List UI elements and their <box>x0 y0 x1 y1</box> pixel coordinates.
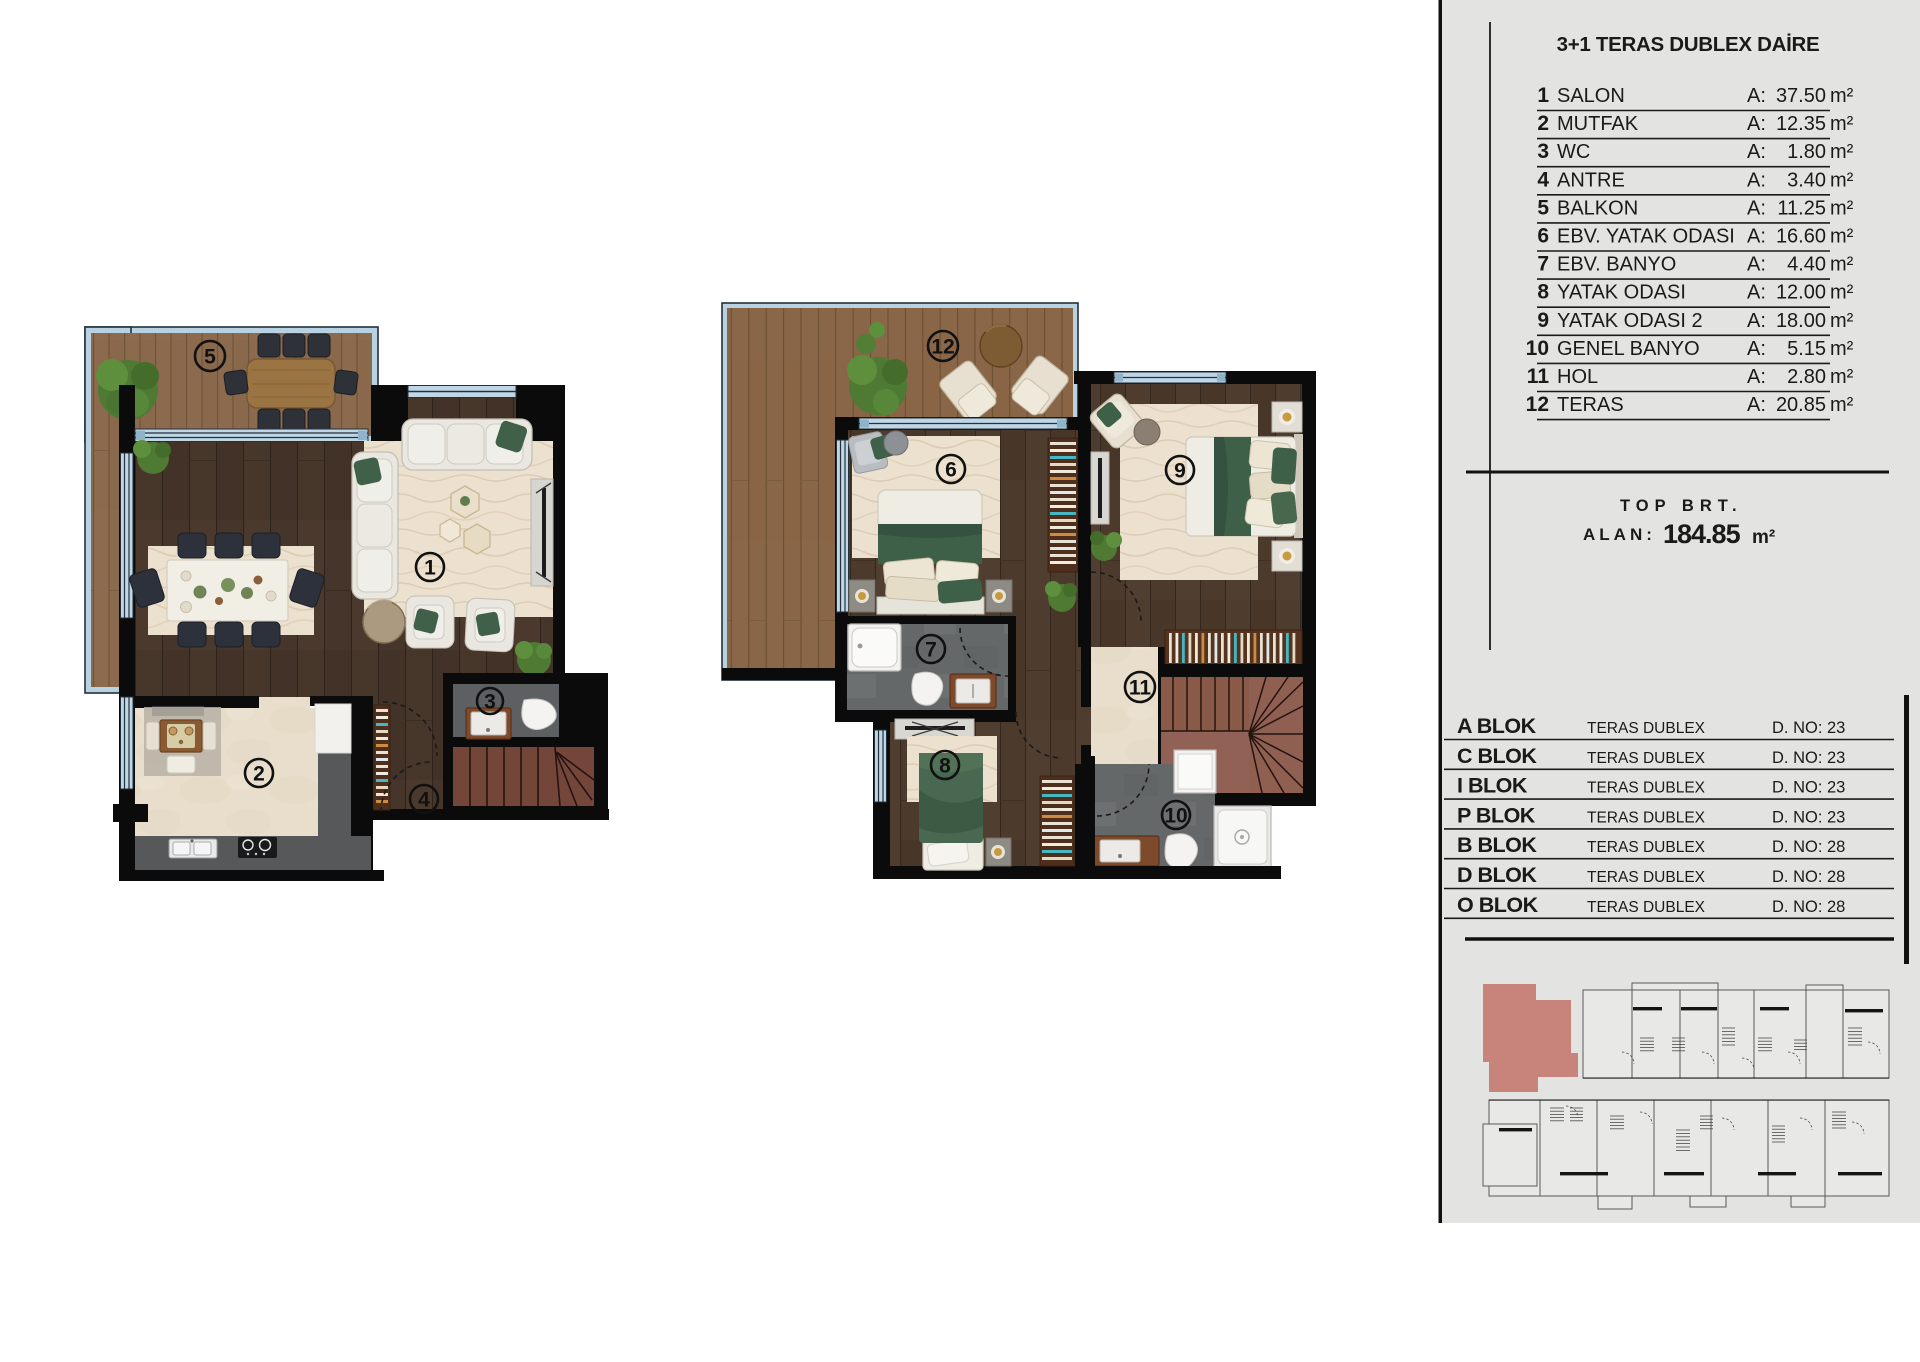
svg-text:5.15: 5.15 <box>1782 338 1826 360</box>
svg-text:TERAS DUBLEX: TERAS DUBLEX <box>1587 839 1706 856</box>
svg-text:11: 11 <box>1129 677 1152 700</box>
svg-text:A:: A: <box>1747 254 1766 276</box>
svg-text:20.85: 20.85 <box>1776 394 1826 416</box>
svg-text:A:: A: <box>1747 338 1766 360</box>
svg-text:m²: m² <box>1830 197 1854 219</box>
svg-text:11.25: 11.25 <box>1777 197 1826 219</box>
svg-text:GENEL BANYO: GENEL BANYO <box>1557 338 1700 360</box>
svg-text:TERAS DUBLEX: TERAS DUBLEX <box>1587 899 1706 916</box>
svg-text:12.00: 12.00 <box>1776 282 1826 304</box>
svg-text:184.85: 184.85 <box>1663 519 1741 549</box>
svg-text:9: 9 <box>1537 309 1549 332</box>
svg-text:m²: m² <box>1830 226 1854 248</box>
svg-text:BALKON: BALKON <box>1557 197 1638 219</box>
svg-text:m²: m² <box>1830 338 1854 360</box>
svg-text:P BLOK: P BLOK <box>1457 803 1536 827</box>
svg-text:C BLOK: C BLOK <box>1457 744 1537 768</box>
svg-text:I BLOK: I BLOK <box>1457 774 1528 798</box>
svg-text:ANTRE: ANTRE <box>1557 169 1625 191</box>
svg-text:SALON: SALON <box>1557 85 1625 107</box>
svg-text:A:: A: <box>1747 282 1766 304</box>
svg-text:6: 6 <box>1537 225 1549 248</box>
svg-text:7: 7 <box>1537 253 1549 276</box>
svg-text:4: 4 <box>418 789 430 812</box>
svg-text:A:: A: <box>1747 226 1766 248</box>
svg-text:A:: A: <box>1747 366 1766 388</box>
svg-text:m²: m² <box>1830 169 1854 191</box>
svg-text:A:: A: <box>1747 141 1766 163</box>
svg-text:3.40: 3.40 <box>1782 169 1826 191</box>
svg-text:TOP BRT.: TOP BRT. <box>1620 497 1743 515</box>
svg-text:D. NO: 23: D. NO: 23 <box>1772 808 1845 826</box>
svg-text:6: 6 <box>945 459 957 482</box>
svg-text:2: 2 <box>1537 112 1549 135</box>
svg-text:A:: A: <box>1747 169 1766 191</box>
svg-text:9: 9 <box>1174 460 1186 483</box>
svg-text:A:: A: <box>1747 197 1766 219</box>
svg-text:10: 10 <box>1526 337 1549 360</box>
svg-text:O BLOK: O BLOK <box>1457 893 1539 917</box>
svg-text:3+1 TERAS DUBLEX DAİRE: 3+1 TERAS DUBLEX DAİRE <box>1557 33 1820 56</box>
svg-text:5: 5 <box>1537 196 1549 219</box>
svg-text:18.00: 18.00 <box>1776 310 1826 332</box>
svg-text:8: 8 <box>939 755 951 778</box>
svg-text:A:: A: <box>1747 394 1766 416</box>
svg-text:3: 3 <box>1537 140 1549 163</box>
svg-text:2.80: 2.80 <box>1782 366 1826 388</box>
svg-text:ALAN:: ALAN: <box>1583 525 1656 544</box>
svg-text:A:: A: <box>1747 85 1766 107</box>
svg-text:12: 12 <box>931 336 954 359</box>
svg-text:TERAS: TERAS <box>1557 394 1624 416</box>
svg-text:m²: m² <box>1830 141 1854 163</box>
svg-text:YATAK ODASI: YATAK ODASI <box>1557 282 1686 304</box>
svg-text:1: 1 <box>424 557 436 580</box>
svg-text:D. NO: 28: D. NO: 28 <box>1772 868 1845 886</box>
svg-text:1: 1 <box>1537 84 1549 107</box>
svg-text:A:: A: <box>1747 113 1766 135</box>
svg-text:16.60: 16.60 <box>1776 226 1826 248</box>
svg-text:37.50: 37.50 <box>1776 85 1826 107</box>
svg-text:m²: m² <box>1830 282 1854 304</box>
svg-text:10: 10 <box>1164 805 1187 828</box>
svg-text:TERAS DUBLEX: TERAS DUBLEX <box>1587 750 1706 767</box>
svg-text:7: 7 <box>925 639 937 662</box>
svg-text:4.40: 4.40 <box>1782 254 1826 276</box>
svg-text:TERAS DUBLEX: TERAS DUBLEX <box>1587 809 1706 826</box>
svg-text:HOL: HOL <box>1557 366 1598 388</box>
svg-text:WC: WC <box>1557 141 1590 163</box>
svg-text:D. NO: 23: D. NO: 23 <box>1772 749 1845 767</box>
svg-text:EBV. YATAK ODASI: EBV. YATAK ODASI <box>1557 226 1735 248</box>
svg-text:5: 5 <box>204 346 216 369</box>
svg-text:D. NO: 28: D. NO: 28 <box>1772 898 1845 916</box>
svg-text:m²: m² <box>1752 527 1775 548</box>
svg-text:m²: m² <box>1830 310 1854 332</box>
svg-text:B BLOK: B BLOK <box>1457 833 1537 857</box>
svg-text:D. NO: 28: D. NO: 28 <box>1772 838 1845 856</box>
svg-text:D. NO: 23: D. NO: 23 <box>1772 719 1845 737</box>
svg-text:m²: m² <box>1830 394 1854 416</box>
svg-text:1.80: 1.80 <box>1782 141 1826 163</box>
svg-text:YATAK ODASI 2: YATAK ODASI 2 <box>1557 310 1703 332</box>
svg-text:A BLOK: A BLOK <box>1457 714 1537 738</box>
svg-text:TERAS DUBLEX: TERAS DUBLEX <box>1587 780 1706 797</box>
svg-text:TERAS DUBLEX: TERAS DUBLEX <box>1587 720 1706 737</box>
svg-text:m²: m² <box>1830 113 1854 135</box>
svg-text:m²: m² <box>1830 366 1854 388</box>
svg-text:TERAS DUBLEX: TERAS DUBLEX <box>1587 869 1706 886</box>
svg-text:EBV. BANYO: EBV. BANYO <box>1557 254 1676 276</box>
svg-text:MUTFAK: MUTFAK <box>1557 113 1639 135</box>
svg-text:8: 8 <box>1537 281 1549 304</box>
svg-text:4: 4 <box>1537 168 1549 191</box>
svg-text:11: 11 <box>1527 365 1550 388</box>
svg-text:3: 3 <box>484 691 496 714</box>
svg-text:D. NO: 23: D. NO: 23 <box>1772 779 1845 797</box>
svg-text:12.35: 12.35 <box>1776 113 1826 135</box>
svg-text:A:: A: <box>1747 310 1766 332</box>
svg-text:m²: m² <box>1830 85 1854 107</box>
svg-text:m²: m² <box>1830 254 1854 276</box>
svg-text:12: 12 <box>1526 393 1549 416</box>
svg-text:2: 2 <box>253 763 265 786</box>
svg-text:D BLOK: D BLOK <box>1457 863 1537 887</box>
